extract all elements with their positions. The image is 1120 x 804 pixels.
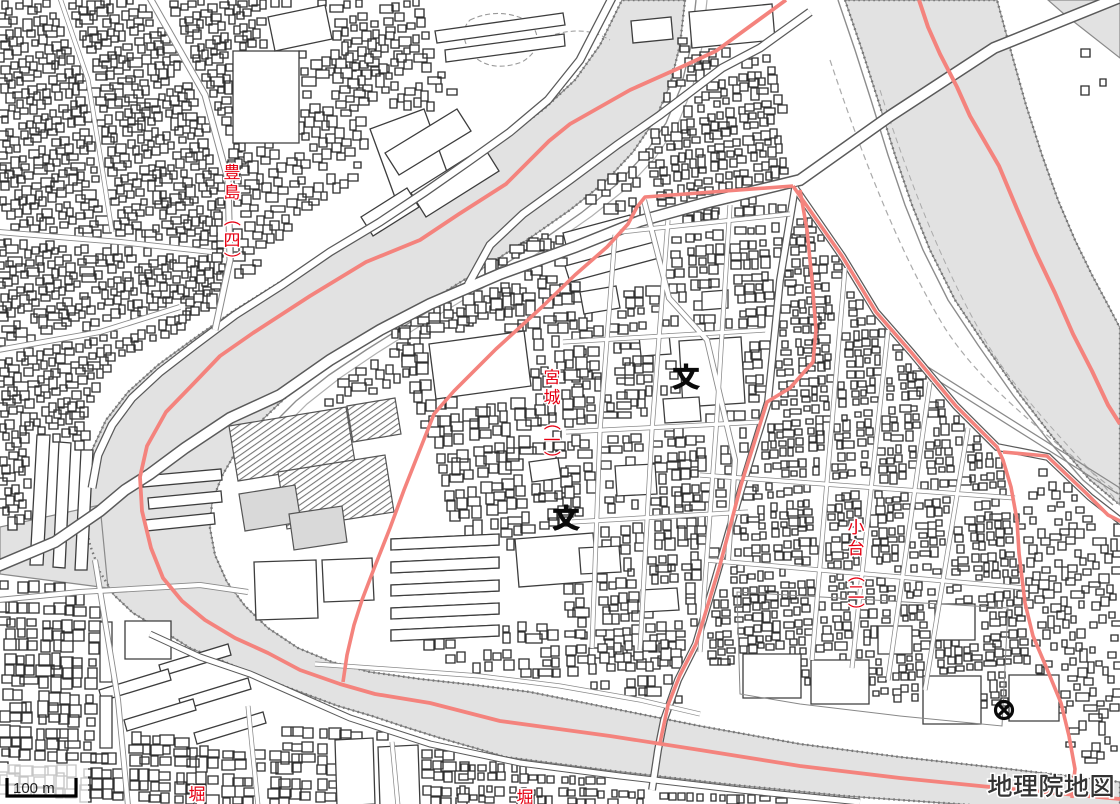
svg-text:100 m: 100 m: [13, 780, 55, 797]
